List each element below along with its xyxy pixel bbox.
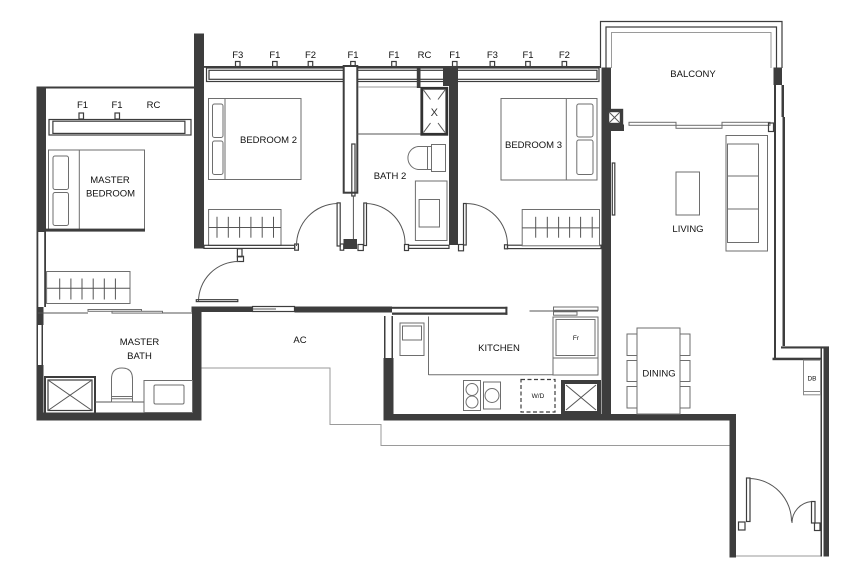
svg-text:BEDROOM 2: BEDROOM 2 bbox=[240, 135, 297, 146]
svg-text:BATH 2: BATH 2 bbox=[374, 171, 407, 182]
svg-text:F1: F1 bbox=[347, 50, 358, 61]
svg-text:F2: F2 bbox=[559, 50, 570, 61]
svg-text:F3: F3 bbox=[232, 50, 243, 61]
svg-text:BEDROOM: BEDROOM bbox=[86, 189, 135, 200]
svg-text:F2: F2 bbox=[305, 50, 316, 61]
svg-text:F1: F1 bbox=[269, 50, 280, 61]
svg-text:KITCHEN: KITCHEN bbox=[478, 343, 520, 354]
svg-text:X: X bbox=[431, 107, 439, 119]
svg-text:F3: F3 bbox=[487, 50, 498, 61]
svg-text:F1: F1 bbox=[522, 50, 533, 61]
svg-text:W/D: W/D bbox=[532, 393, 545, 400]
svg-text:F1: F1 bbox=[388, 50, 399, 61]
svg-text:RC: RC bbox=[147, 100, 161, 111]
svg-text:BATH: BATH bbox=[127, 351, 152, 362]
svg-text:BEDROOM 3: BEDROOM 3 bbox=[505, 140, 562, 151]
svg-text:LIVING: LIVING bbox=[672, 224, 703, 235]
svg-text:F1: F1 bbox=[77, 100, 88, 111]
svg-text:MASTER: MASTER bbox=[120, 337, 160, 348]
svg-text:BALCONY: BALCONY bbox=[670, 69, 716, 80]
svg-text:DB: DB bbox=[807, 376, 816, 383]
svg-text:Fr: Fr bbox=[573, 335, 580, 342]
svg-text:RC: RC bbox=[418, 50, 432, 61]
svg-text:DINING: DINING bbox=[642, 369, 675, 380]
svg-text:F1: F1 bbox=[449, 50, 460, 61]
svg-text:AC: AC bbox=[293, 335, 306, 346]
svg-text:F1: F1 bbox=[111, 100, 122, 111]
svg-text:MASTER: MASTER bbox=[90, 175, 130, 186]
